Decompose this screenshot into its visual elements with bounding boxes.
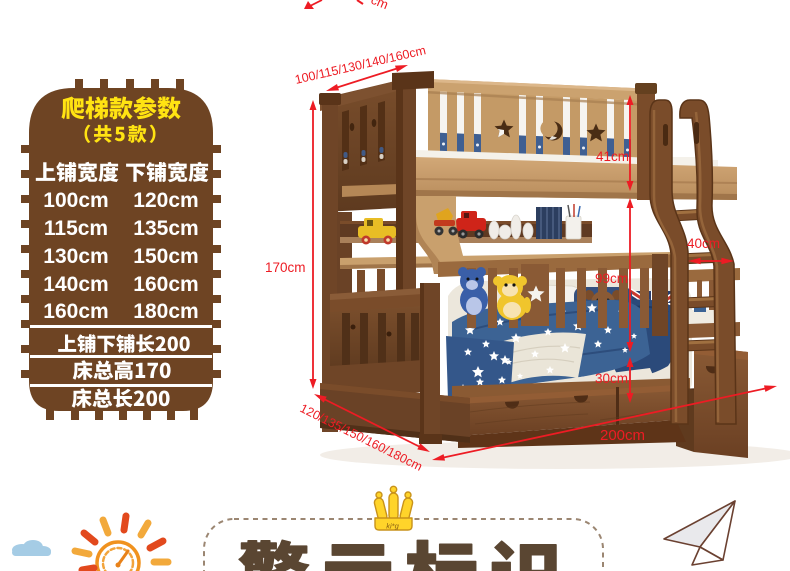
svg-text:160cm: 160cm xyxy=(133,273,198,296)
svg-text:135cm: 135cm xyxy=(133,217,198,240)
svg-text:130cm: 130cm xyxy=(43,245,108,268)
svg-text:170cm: 170cm xyxy=(265,260,306,275)
svg-text:30cm: 30cm xyxy=(595,371,628,386)
svg-text:200cm: 200cm xyxy=(600,427,645,444)
svg-text:140cm: 140cm xyxy=(43,273,108,296)
svg-text:180cm: 180cm xyxy=(133,300,198,323)
svg-text:99cm: 99cm xyxy=(595,271,628,286)
svg-text:120cm: 120cm xyxy=(133,189,198,212)
svg-text:ki*g: ki*g xyxy=(386,522,399,531)
svg-text:100cm: 100cm xyxy=(43,189,108,212)
svg-text:40cm: 40cm xyxy=(687,236,720,251)
svg-text:160cm: 160cm xyxy=(43,300,108,323)
svg-text:41cm: 41cm xyxy=(596,149,629,164)
svg-text:150cm: 150cm xyxy=(133,245,198,268)
svg-text:115cm: 115cm xyxy=(44,217,108,240)
